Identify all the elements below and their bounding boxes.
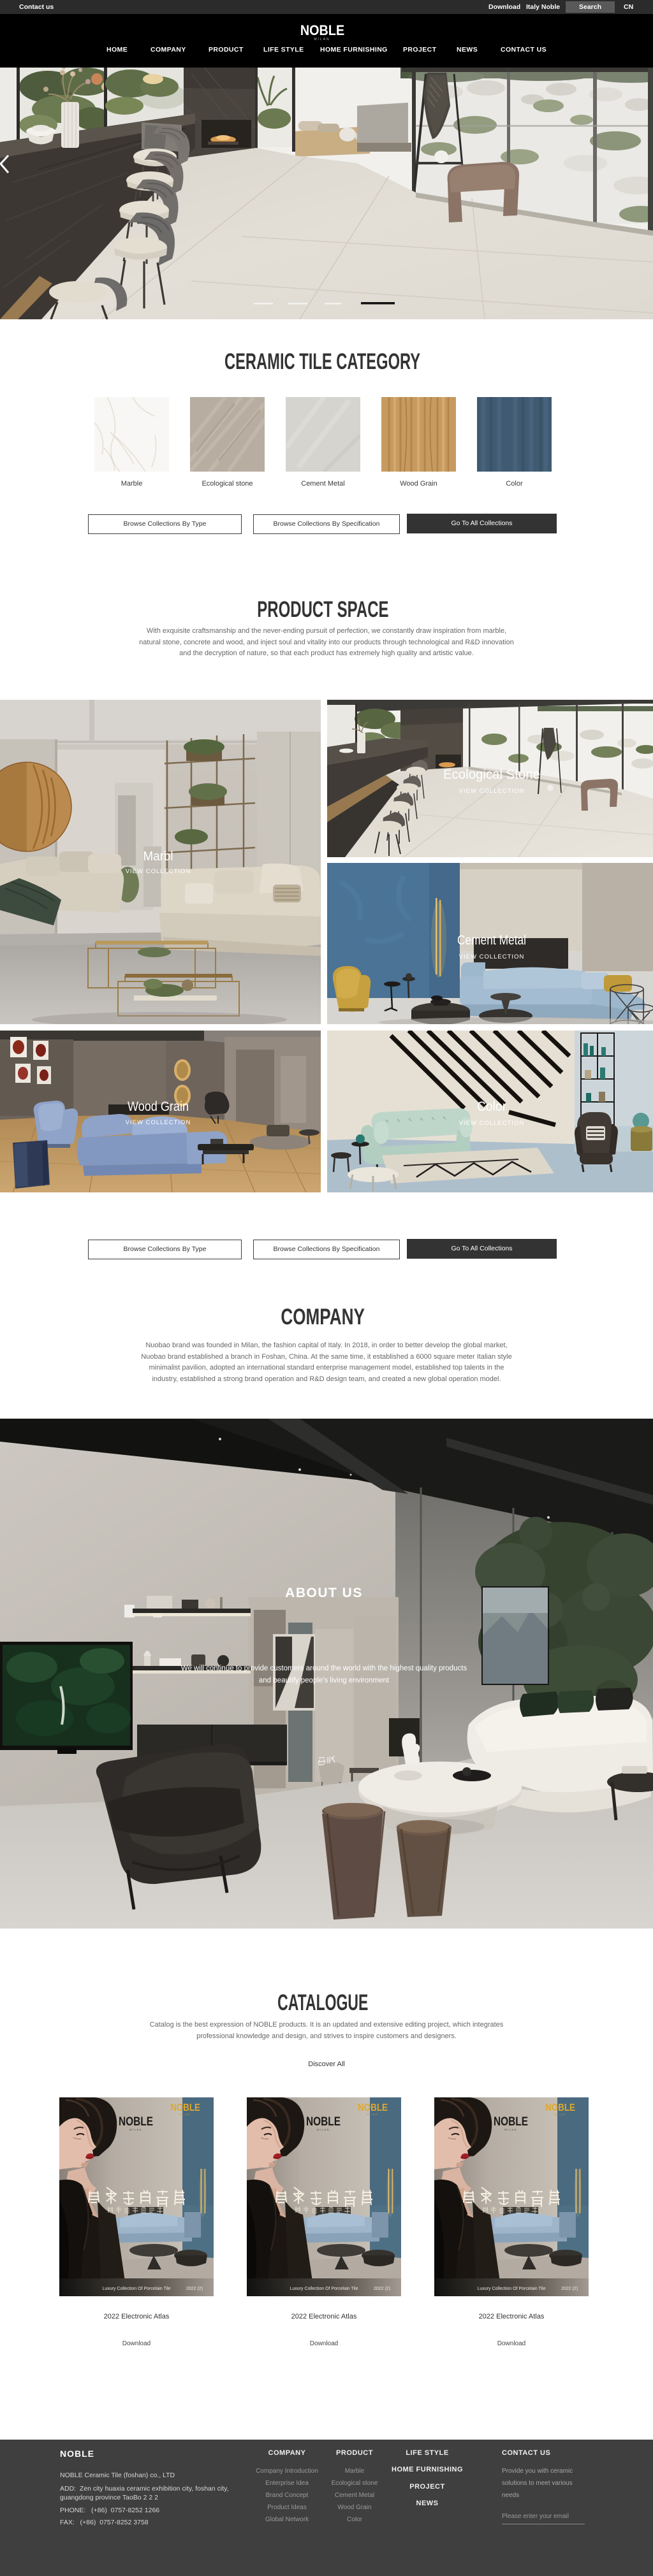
svg-text:Wood Grain: Wood Grain [128,1099,189,1114]
svg-text:Marbl: Marbl [143,850,173,864]
svg-text:and beautify people's living e: and beautify people's living environment [259,1677,390,1684]
svg-text:Color: Color [477,1099,506,1114]
svg-text:VIEW COLLECTION: VIEW COLLECTION [459,953,525,960]
svg-text:ABOUT US: ABOUT US [285,1586,363,1600]
svg-text:We will continue to provide cu: We will continue to provide customers ar… [181,1665,467,1672]
svg-text:Ecological Stone: Ecological Stone [443,767,540,782]
svg-text:VIEW COLLECTION: VIEW COLLECTION [126,1119,191,1126]
svg-text:VIEW COLLECTION: VIEW COLLECTION [459,1120,525,1127]
svg-text:Cement Metal: Cement Metal [457,933,526,948]
svg-text:VIEW COLLECTION: VIEW COLLECTION [126,868,191,875]
svg-text:VIEW COLLECTION: VIEW COLLECTION [459,788,525,795]
